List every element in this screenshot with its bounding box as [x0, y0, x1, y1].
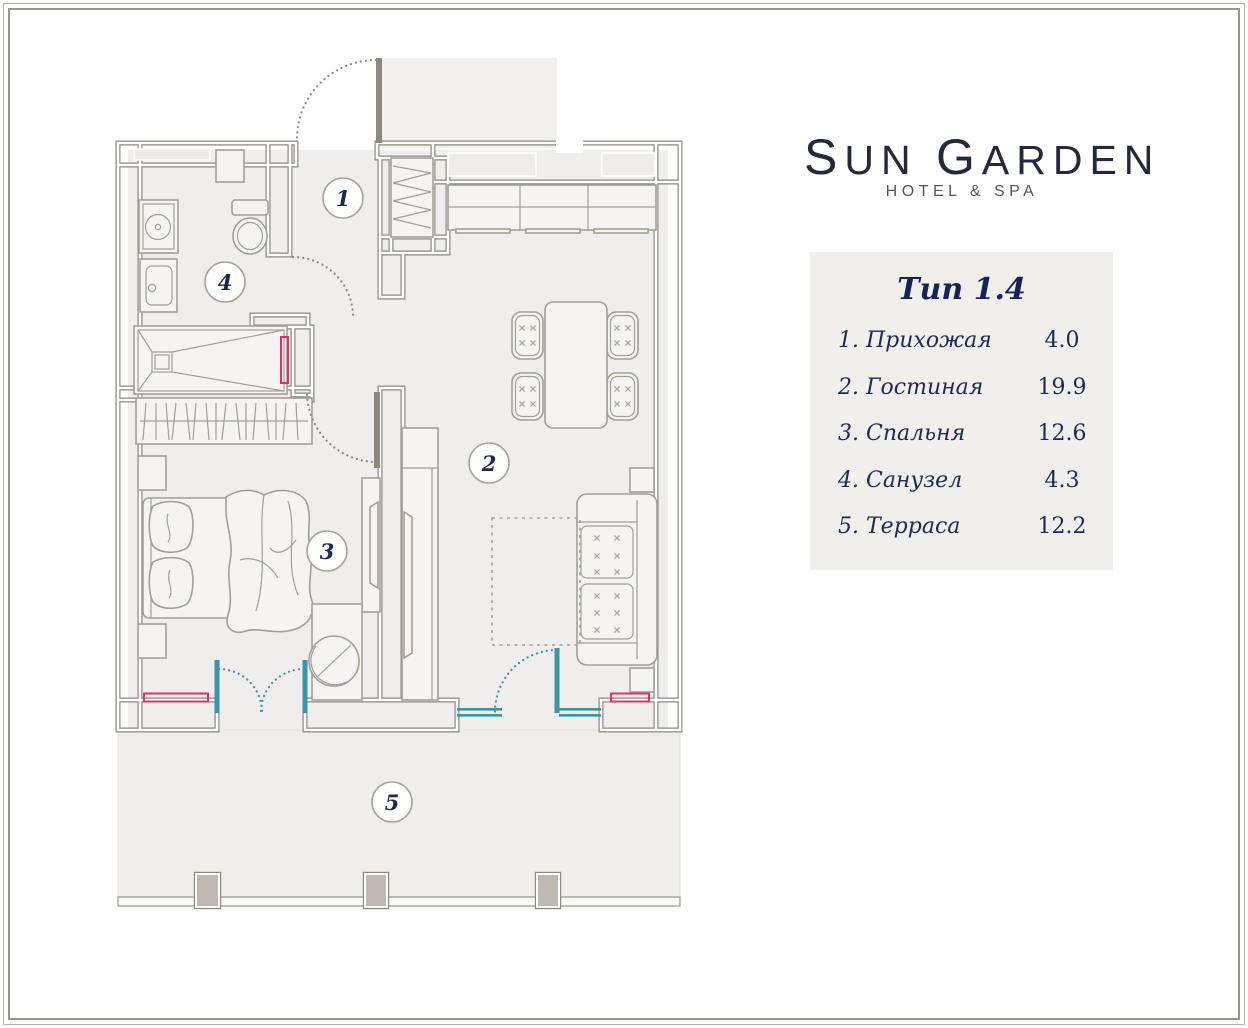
- brand-initial: S: [804, 129, 844, 185]
- shower-tray-icon: [134, 326, 287, 394]
- legend-row: 3. Спальня 12.6: [838, 421, 1099, 468]
- hall-closet-icon: [391, 158, 433, 237]
- room-label: 1. Прихожая: [838, 328, 1025, 353]
- bedroom-door-leaf: [374, 392, 380, 468]
- room-number: 2: [481, 451, 497, 476]
- brand-name: SUN GARDEN: [804, 136, 1120, 181]
- room-marker-2: 2: [469, 443, 509, 483]
- legend-row: 1. Прихожая 4.0: [838, 328, 1099, 375]
- brand-logo: SUN GARDEN HOTEL & SPA: [804, 136, 1120, 201]
- legend-rows: 1. Прихожая 4.0 2. Гостиная 19.9 3. Спал…: [838, 328, 1099, 561]
- blanket: [226, 490, 313, 632]
- room-label: 5. Терраса: [838, 514, 1025, 539]
- wall-notch: [556, 139, 583, 153]
- brand-tagline: HOTEL & SPA: [804, 183, 1120, 201]
- room-number: 1: [336, 186, 351, 211]
- unit-type-title: Тип 1.4: [810, 272, 1113, 307]
- desk-chair-icon: [309, 636, 359, 686]
- dining-table-icon: [545, 302, 607, 428]
- room-area: 12.6: [1025, 421, 1099, 446]
- nightstand: [138, 456, 166, 490]
- bed-icon: [143, 490, 313, 632]
- room-label: 2. Гостиная: [838, 375, 1025, 400]
- room-number: 5: [385, 790, 400, 815]
- brand-text: UN: [844, 137, 917, 183]
- washing-machine-icon: [140, 259, 177, 312]
- legend-row: 2. Гостиная 19.9: [838, 375, 1099, 422]
- page: 1 2 3 4 5 SUN GARDEN HOTEL & SPA: [0, 0, 1248, 1028]
- brand-text: ARDEN: [982, 137, 1161, 183]
- room-area: 4.3: [1025, 468, 1099, 493]
- kitchen-counter-icon: [448, 185, 656, 233]
- nightstand: [138, 624, 166, 658]
- room-area: 12.2: [1025, 514, 1099, 539]
- legend-row: 5. Терраса 12.2: [838, 514, 1099, 561]
- toilet-icon: [232, 200, 268, 254]
- legend-panel: Тип 1.4 1. Прихожая 4.0 2. Гостиная 19.9…: [810, 252, 1113, 570]
- room-label: 4. Санузел: [838, 468, 1025, 493]
- room-number: 3: [320, 539, 335, 564]
- sink-vanity-icon: [139, 200, 178, 253]
- floor-plan: 1 2 3 4 5: [0, 0, 760, 1028]
- room-area: 19.9: [1025, 375, 1099, 400]
- living-tv-cabinet-icon: [402, 428, 438, 700]
- room-label: 3. Спальня: [838, 421, 1025, 446]
- room-marker-4: 4: [205, 262, 245, 302]
- room-marker-5: 5: [372, 782, 412, 822]
- entry-door-leaf: [376, 58, 382, 143]
- room-marker-1: 1: [323, 178, 363, 218]
- cistern-niche: [216, 150, 244, 182]
- sofa-icon: [577, 494, 657, 665]
- bedroom-tv-console-icon: [362, 478, 380, 612]
- room-number: 4: [218, 270, 233, 295]
- legend-row: 4. Санузел 4.3: [838, 468, 1099, 515]
- room-marker-3: 3: [307, 531, 347, 571]
- side-table: [630, 668, 654, 692]
- brand-initial: G: [936, 129, 982, 185]
- room-area: 4.0: [1025, 328, 1099, 353]
- wardrobe-icon: [136, 398, 312, 444]
- side-table: [630, 468, 654, 492]
